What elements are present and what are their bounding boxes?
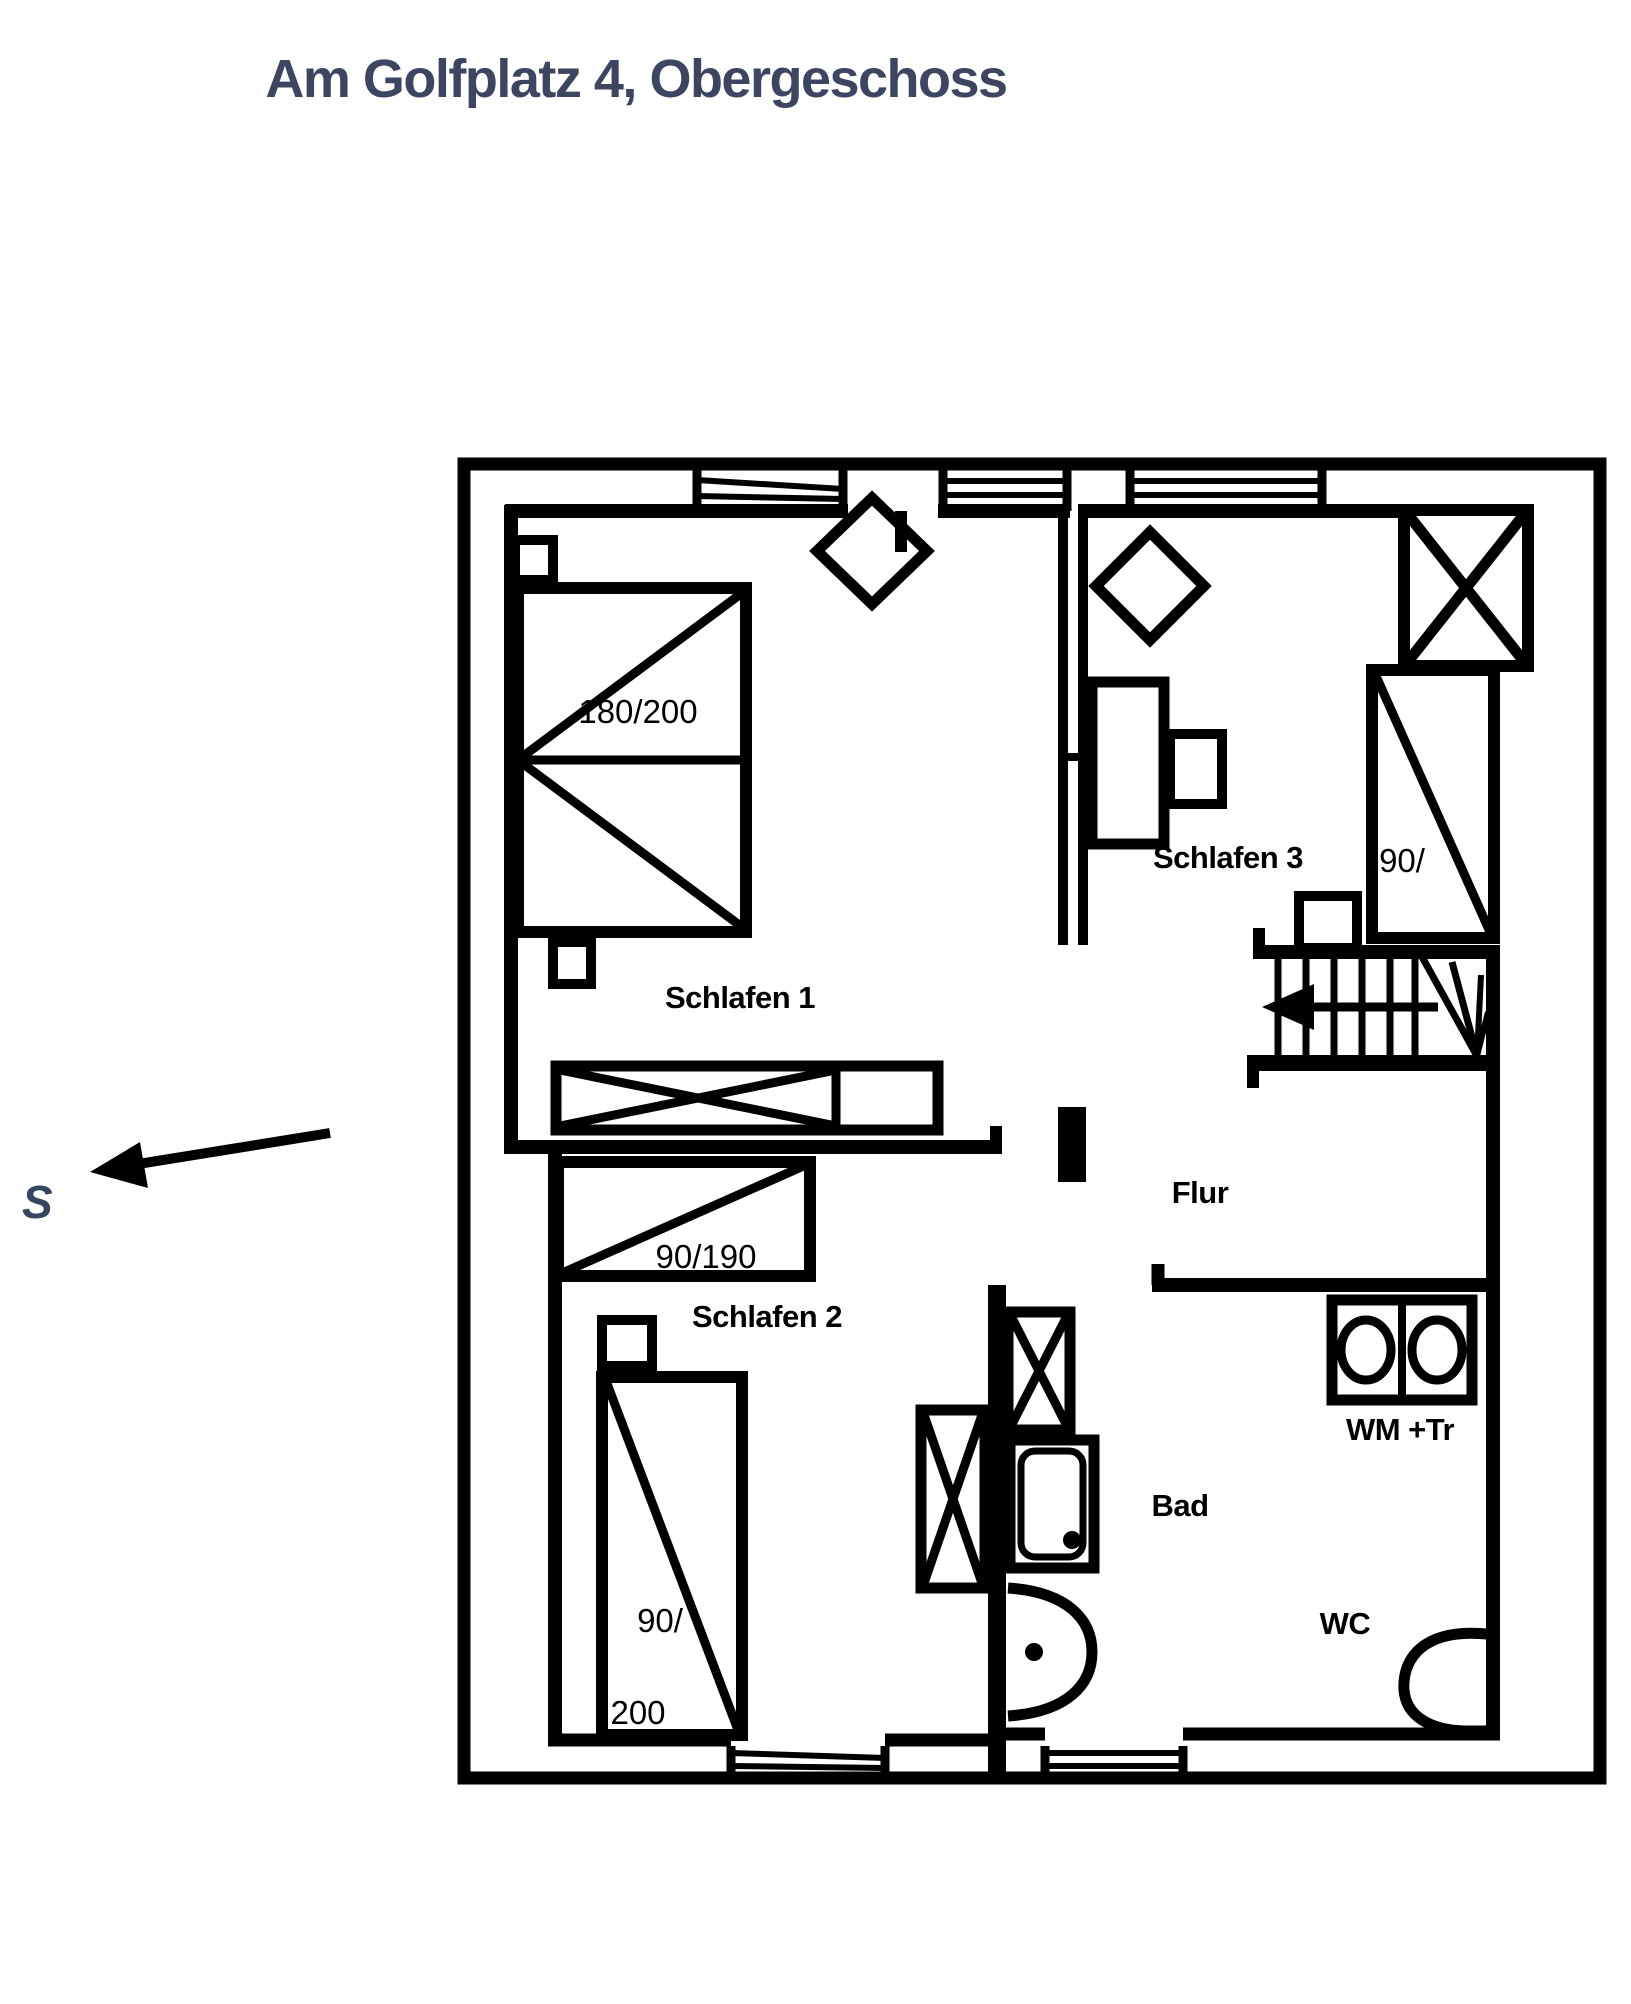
south-arrow-icon (90, 1133, 330, 1188)
desk (1092, 682, 1164, 844)
label-schlafen1: Schlafen 1 (665, 980, 815, 1015)
schlafen1-furniture (515, 498, 938, 1130)
schlafen3-furniture (1092, 510, 1528, 948)
floor-plan-drawing: Am Golfplatz 4, Obergeschoss (0, 0, 1631, 2004)
lamp-diamond-icon (1096, 532, 1204, 640)
label-bad: Bad (1151, 1488, 1208, 1523)
nightstand (553, 942, 591, 984)
bed-90-schlafen3 (1372, 670, 1494, 938)
wardrobe-schlafen2 (921, 1410, 985, 1588)
dim-bed-schlafen3: 90/ (1379, 842, 1426, 879)
dim-bed1-schlafen2: 90/190 (656, 1238, 757, 1275)
shelf-crossed (1008, 1312, 1070, 1430)
dim-bed2-length-schlafen2: 200 (610, 1694, 665, 1731)
page-title: Am Golfplatz 4, Obergeschoss (265, 49, 1006, 109)
bed-90x200 (602, 1377, 742, 1735)
staircase (1247, 928, 1496, 1088)
label-schlafen3: Schlafen 3 (1153, 840, 1303, 875)
bad-fixtures (1008, 1300, 1487, 1731)
toilet (1404, 1633, 1487, 1731)
nightstand (515, 540, 553, 580)
label-schlafen2: Schlafen 2 (692, 1299, 842, 1334)
south-label: S (22, 1176, 53, 1228)
bed-180x200 (518, 588, 746, 932)
nightstand (602, 1320, 652, 1366)
shower (1010, 1440, 1094, 1568)
wardrobe-schlafen3 (1404, 510, 1528, 666)
dim-bed2-width-schlafen2: 90/ (637, 1602, 684, 1639)
label-wc: WC (1320, 1606, 1371, 1641)
washer-dryer (1332, 1300, 1472, 1400)
label-flur: Flur (1172, 1175, 1229, 1210)
nightstand (1299, 896, 1357, 948)
floor-plan-page: Am Golfplatz 4, Obergeschoss (0, 0, 1631, 2004)
sink (1008, 1588, 1092, 1716)
label-wm-tr: WM +Tr (1346, 1412, 1455, 1447)
schlafen2-furniture (558, 1162, 985, 1735)
dim-bed-schlafen1: 180/200 (578, 693, 697, 730)
chair (1170, 734, 1222, 804)
wardrobe-schlafen1 (556, 1066, 938, 1130)
